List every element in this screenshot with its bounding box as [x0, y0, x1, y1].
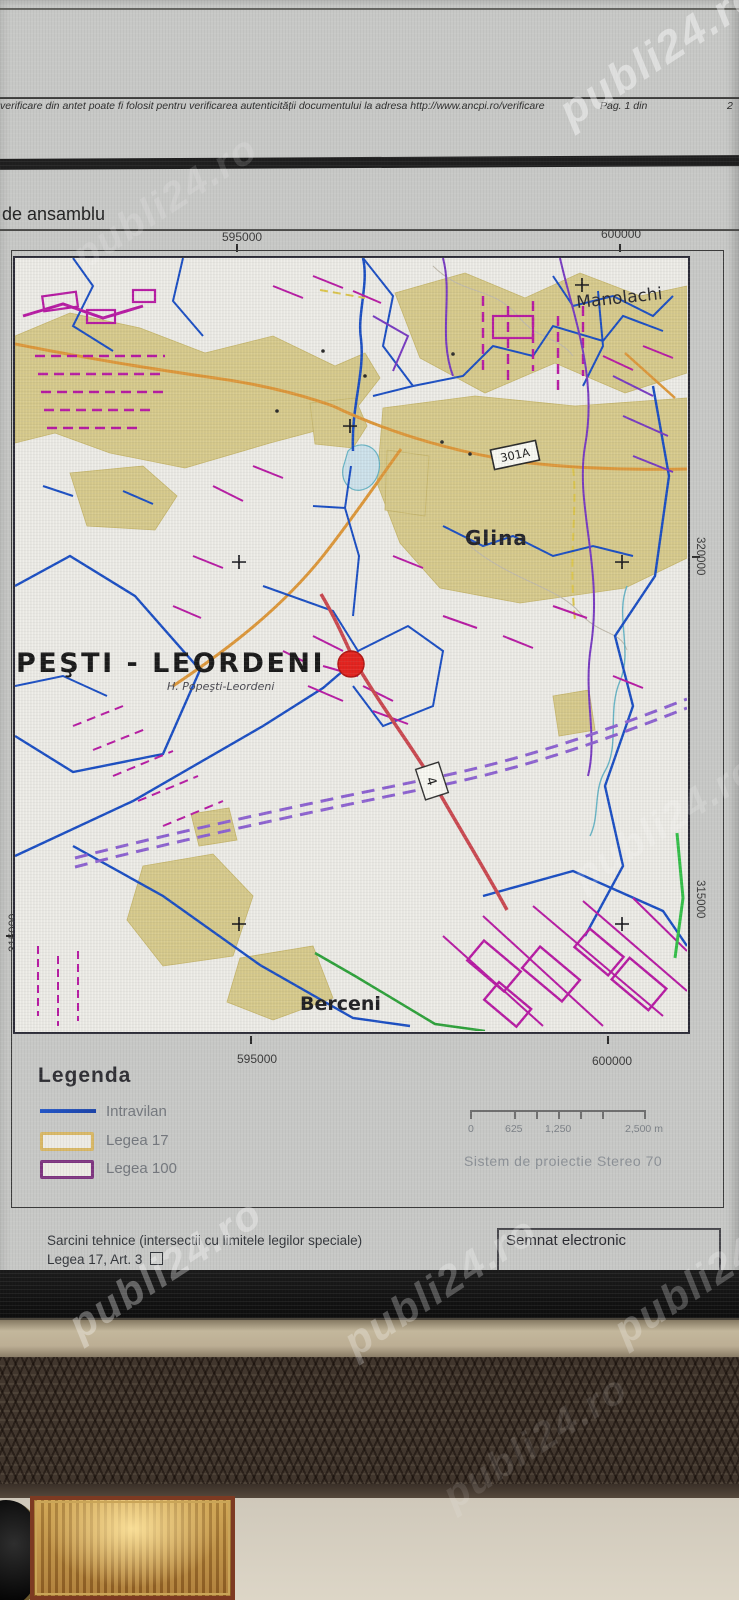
projection-note: Sistem de proiectie Stereo 70 [464, 1153, 662, 1169]
legend-item-label: Legea 17 [106, 1132, 169, 1149]
svg-text:PEŞTI - LEORDENI: PEŞTI - LEORDENI [16, 648, 325, 679]
speaker-grille [0, 1357, 739, 1484]
tan-rect-swatch [40, 1132, 94, 1151]
verification-note: verificare din antet poate fi folosit pe… [0, 100, 588, 112]
monitor-screen: verificare din antet poate fi folosit pe… [0, 0, 739, 1318]
map-red-road [321, 594, 507, 910]
blue-line-swatch [40, 1109, 96, 1113]
coord-top-left: 595000 [222, 230, 262, 244]
map-tan-zones [15, 273, 687, 1020]
scale-tick-label: 1,250 [545, 1123, 571, 1135]
monitor-bezel [0, 1318, 739, 1357]
gold-icon-painting [30, 1496, 235, 1600]
svg-text:Glina: Glina [465, 526, 528, 550]
legend-item-intravilan: Intravilan [40, 1102, 260, 1122]
task-note-text: Legea 17, Art. 3 [47, 1252, 142, 1267]
legend-item-label: Intravilan [106, 1103, 167, 1120]
coord-top-right: 600000 [601, 227, 641, 241]
checkbox[interactable] [150, 1252, 163, 1265]
taskbar [0, 1270, 739, 1318]
scale-tick-label: 0 [468, 1123, 474, 1135]
svg-text:Berceni: Berceni [300, 993, 381, 1015]
page-indicator: Pag. 1 din [600, 100, 647, 112]
scale-bar [470, 1110, 646, 1121]
task-note-line1: Sarcini tehnice (intersectii cu limitele… [47, 1233, 362, 1248]
legend-title: Legenda [38, 1064, 131, 1088]
overview-map: 301A 4 Manolachi Glina PEŞTI - LEORDENI … [13, 256, 690, 1034]
window-top-line [0, 8, 739, 10]
section-title: de ansamblu [2, 204, 105, 225]
road-shield-4: 4 [416, 762, 449, 800]
legend-item-legea100: Legea 100 [40, 1159, 260, 1179]
task-note-line2: Legea 17, Art. 3 [47, 1252, 163, 1267]
location-marker [338, 651, 364, 677]
purple-rect-swatch [40, 1160, 94, 1179]
scale-tick-label: 2,500 m [625, 1123, 663, 1135]
scale-tick-label: 625 [505, 1123, 523, 1135]
header-rule [0, 97, 739, 99]
legend-item-label: Legea 100 [106, 1160, 177, 1177]
map-canvas: 301A 4 Manolachi Glina PEŞTI - LEORDENI … [15, 258, 687, 1031]
legend-item-legea17: Legea 17 [40, 1131, 260, 1151]
page-separator [0, 155, 739, 170]
svg-text:H. Popeşti-Leordeni: H. Popeşti-Leordeni [167, 680, 274, 693]
page-total: 2 [727, 100, 733, 112]
signed-electronic-box: Semnat electronic [497, 1228, 721, 1272]
signed-electronic-label: Semnat electronic [499, 1230, 719, 1251]
photo-of-monitor: verificare din antet poate fi folosit pe… [0, 0, 739, 1600]
